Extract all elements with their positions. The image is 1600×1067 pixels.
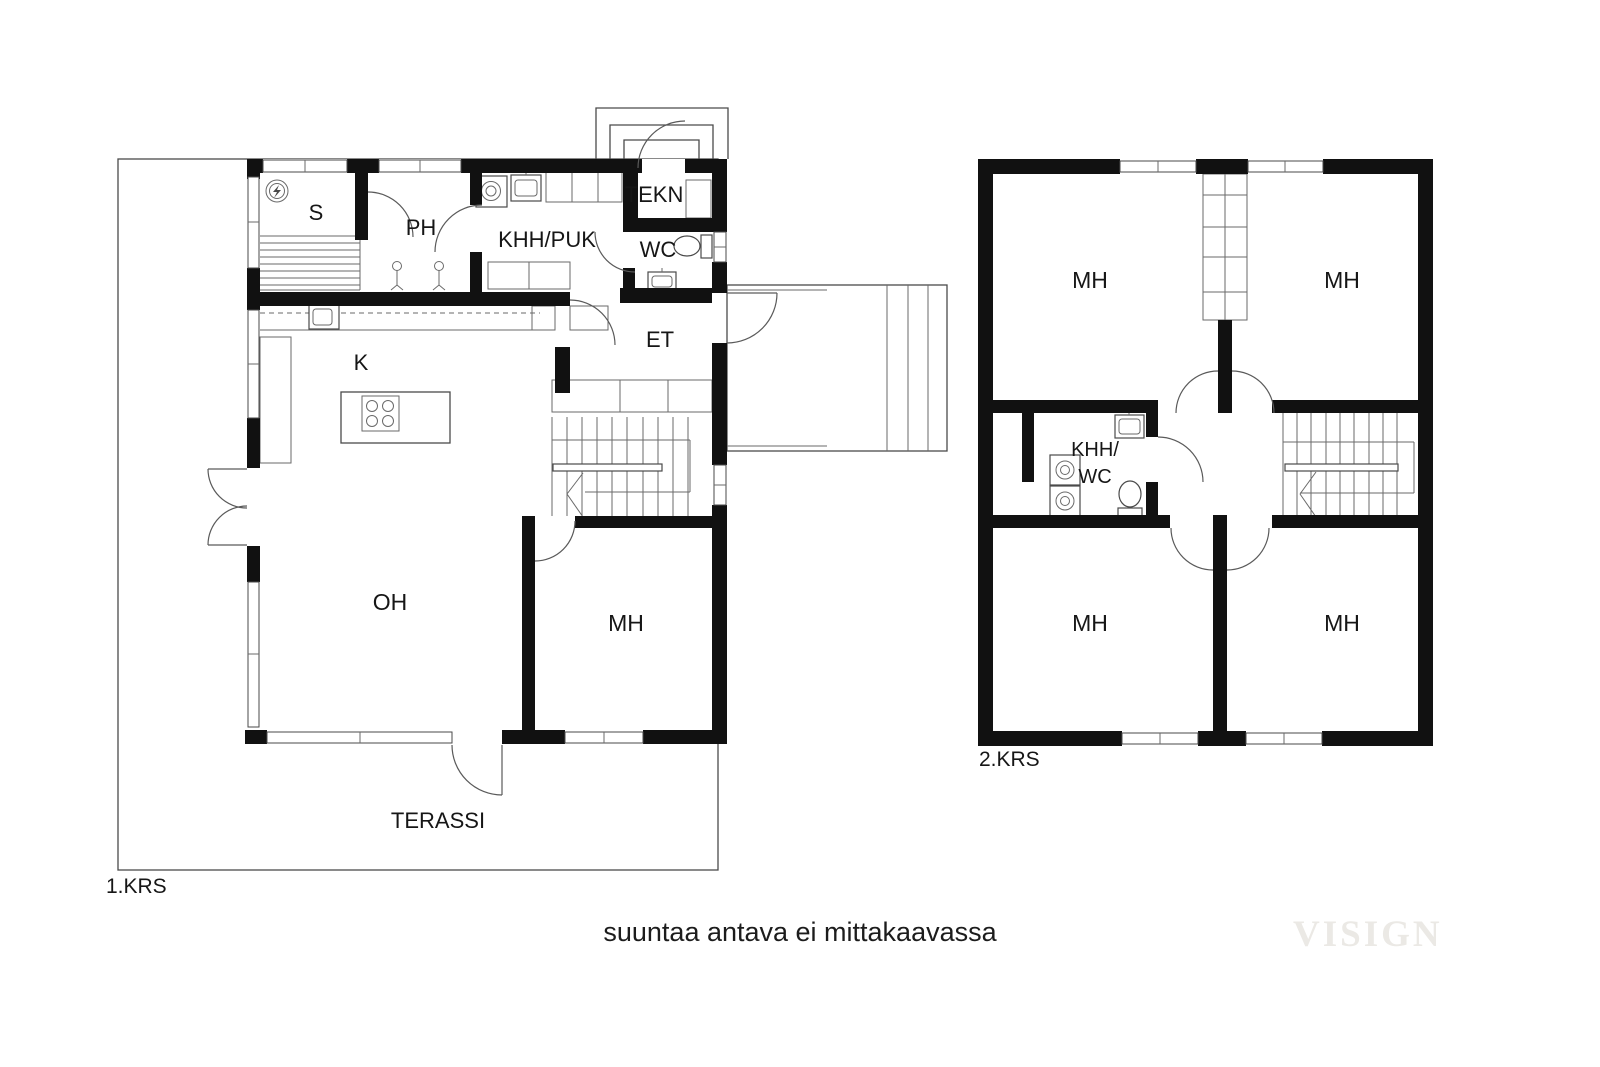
room-label-sauna: S xyxy=(309,200,324,225)
floorplan-drawing: S PH KHH/PUK TEKN WC ET K OH MH TERASSI … xyxy=(0,0,1600,1067)
room-label-bathroom: PH xyxy=(406,215,437,240)
room-label-bedroom-tl: MH xyxy=(1072,267,1108,293)
room-label-bedroom1: MH xyxy=(608,610,644,636)
room-label-terrace: TERASSI xyxy=(391,808,485,833)
sink-icon xyxy=(511,170,541,201)
room-label-utility-wc-line2: WC xyxy=(1078,466,1111,488)
door-arc-terrace xyxy=(452,745,502,795)
toilet-icon xyxy=(1118,481,1142,519)
floor2-label: 2.KRS xyxy=(979,748,1040,771)
stair-handrail xyxy=(553,464,662,471)
stair-handrail xyxy=(1285,464,1398,471)
room-label-wc: WC xyxy=(640,237,677,262)
floor1-label: 1.KRS xyxy=(106,875,167,898)
room-label-utility: KHH/PUK xyxy=(498,227,596,252)
sauna-stove-icon xyxy=(266,180,288,202)
room-label-bedroom-bl: MH xyxy=(1072,610,1108,636)
door-arc-deck xyxy=(727,293,777,343)
room-label-bedroom-tr: MH xyxy=(1324,267,1360,293)
entrance-porch-steps xyxy=(596,108,728,159)
door-arc-french-lower xyxy=(208,506,247,545)
room-label-utility-wc-line1: KHH/ xyxy=(1071,439,1119,461)
visign-watermark: VISIGN xyxy=(1293,914,1443,955)
room-label-entry: ET xyxy=(646,327,674,352)
toilet-icon xyxy=(674,235,712,258)
floor2-plan: MH MH MH MH KHH/ WC 2.KRS xyxy=(978,159,1433,771)
entry-deck xyxy=(727,285,947,451)
floor1-plan: S PH KHH/PUK TEKN WC ET K OH MH TERASSI … xyxy=(106,108,947,898)
room-label-living: OH xyxy=(373,589,408,615)
floorplan-page: S PH KHH/PUK TEKN WC ET K OH MH TERASSI … xyxy=(0,0,1600,1067)
room-label-bedroom-br: MH xyxy=(1324,610,1360,636)
disclaimer-caption: suuntaa antava ei mittakaavassa xyxy=(603,917,997,947)
washer-icon xyxy=(1050,486,1080,516)
door-arc-french-upper xyxy=(208,469,247,508)
room-label-technical: TEKN xyxy=(625,182,684,207)
room-label-kitchen: K xyxy=(354,350,369,375)
floor2-footprint xyxy=(978,159,1433,746)
